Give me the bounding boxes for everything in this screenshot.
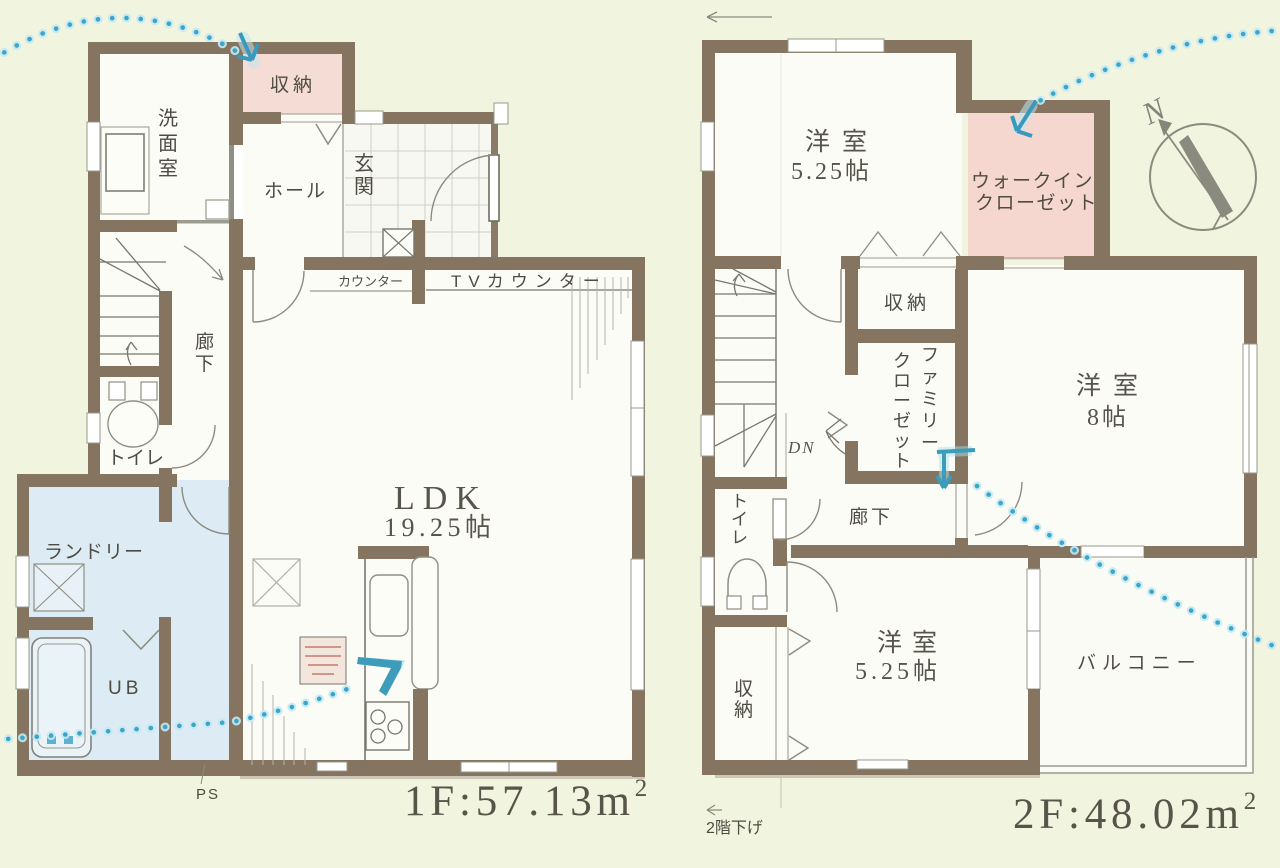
svg-text:洋室: 洋室	[805, 128, 879, 156]
svg-text:ランドリー: ランドリー	[44, 542, 144, 563]
svg-text:LDK: LDK	[394, 480, 488, 517]
svg-text:洋室: 洋室	[877, 629, 947, 657]
svg-text:5.25帖: 5.25帖	[855, 658, 941, 685]
svg-text:2F:48.02m2: 2F:48.02m2	[1013, 788, 1261, 838]
svg-text:5.25帖: 5.25帖	[791, 158, 872, 185]
svg-text:ファミリー: ファミリー	[921, 345, 939, 453]
svg-text:バルコニー: バルコニー	[1077, 653, 1202, 674]
svg-text:2階下げ: 2階下げ	[706, 819, 763, 837]
svg-text:ホール: ホール	[264, 181, 327, 202]
svg-text:DN: DN	[787, 438, 816, 457]
svg-text:洗面室: 洗面室	[158, 107, 178, 180]
svg-text:PS: PS	[196, 786, 220, 803]
svg-text:8帖: 8帖	[1087, 404, 1129, 431]
svg-text:廊下: 廊下	[849, 506, 893, 528]
svg-text:TVカウンター: TVカウンター	[451, 272, 607, 291]
svg-text:収納: 収納	[884, 292, 930, 314]
svg-text:UB: UB	[108, 678, 142, 699]
svg-text:クローゼット: クローゼット	[893, 351, 911, 471]
svg-text:トイレ: トイレ	[731, 492, 748, 547]
svg-text:収納: 収納	[270, 74, 316, 96]
svg-text:クローゼット: クローゼット	[975, 192, 1098, 214]
svg-text:収納: 収納	[734, 678, 753, 721]
svg-text:トイレ: トイレ	[107, 448, 164, 469]
svg-text:洋室: 洋室	[1076, 372, 1150, 400]
svg-text:カウンター: カウンター	[338, 274, 403, 289]
svg-text:19.25帖: 19.25帖	[384, 513, 496, 542]
svg-text:1F:57.13m2: 1F:57.13m2	[404, 775, 652, 825]
svg-text:ウォークイン: ウォークイン	[971, 170, 1094, 192]
